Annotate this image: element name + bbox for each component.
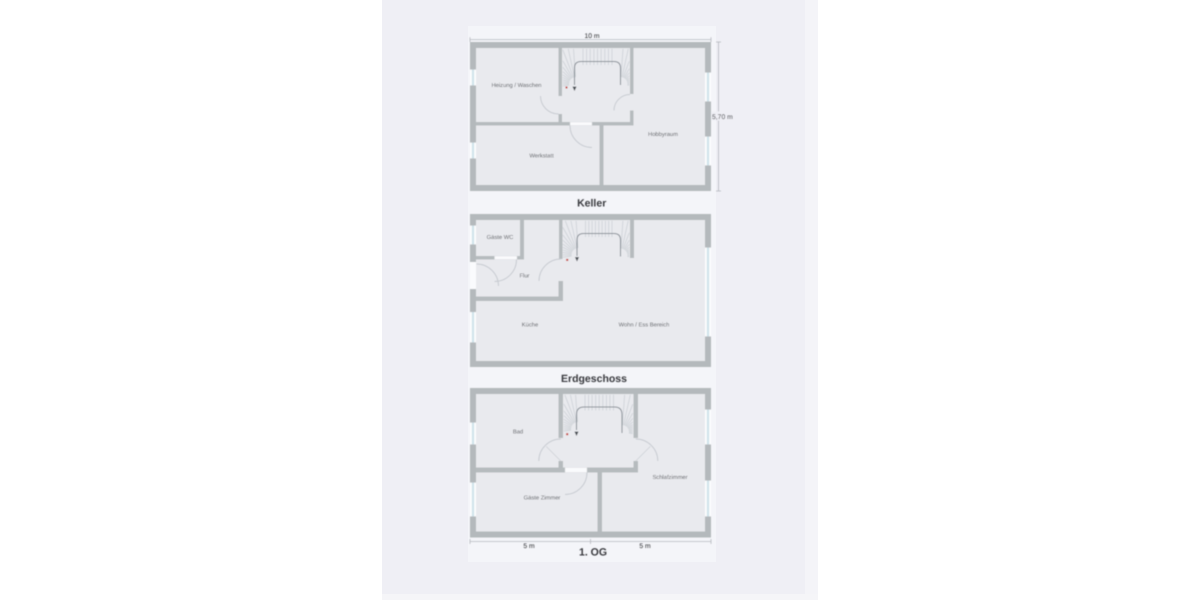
svg-text:Flur: Flur <box>520 273 530 280</box>
svg-text:Schlafzimmer: Schlafzimmer <box>652 474 687 481</box>
svg-text:1. OG: 1. OG <box>579 547 607 559</box>
svg-text:Gäste WC: Gäste WC <box>487 234 514 241</box>
svg-text:Gäste Zimmer: Gäste Zimmer <box>524 495 561 502</box>
svg-text:Küche: Küche <box>522 322 538 329</box>
svg-text:Bad: Bad <box>513 429 523 436</box>
svg-text:5 m: 5 m <box>523 543 535 550</box>
svg-text:Keller: Keller <box>577 198 606 210</box>
svg-text:Werkstatt: Werkstatt <box>529 153 554 160</box>
svg-text:Erdgeschoss: Erdgeschoss <box>561 373 627 385</box>
svg-text:Wohn / Ess Bereich: Wohn / Ess Bereich <box>619 322 670 329</box>
svg-text:Hobbyraum: Hobbyraum <box>648 131 678 138</box>
svg-text:5 m: 5 m <box>639 543 651 550</box>
svg-text:10 m: 10 m <box>584 33 599 40</box>
svg-text:5,70 m: 5,70 m <box>712 114 733 121</box>
svg-text:Heizung / Waschen: Heizung / Waschen <box>491 82 541 89</box>
